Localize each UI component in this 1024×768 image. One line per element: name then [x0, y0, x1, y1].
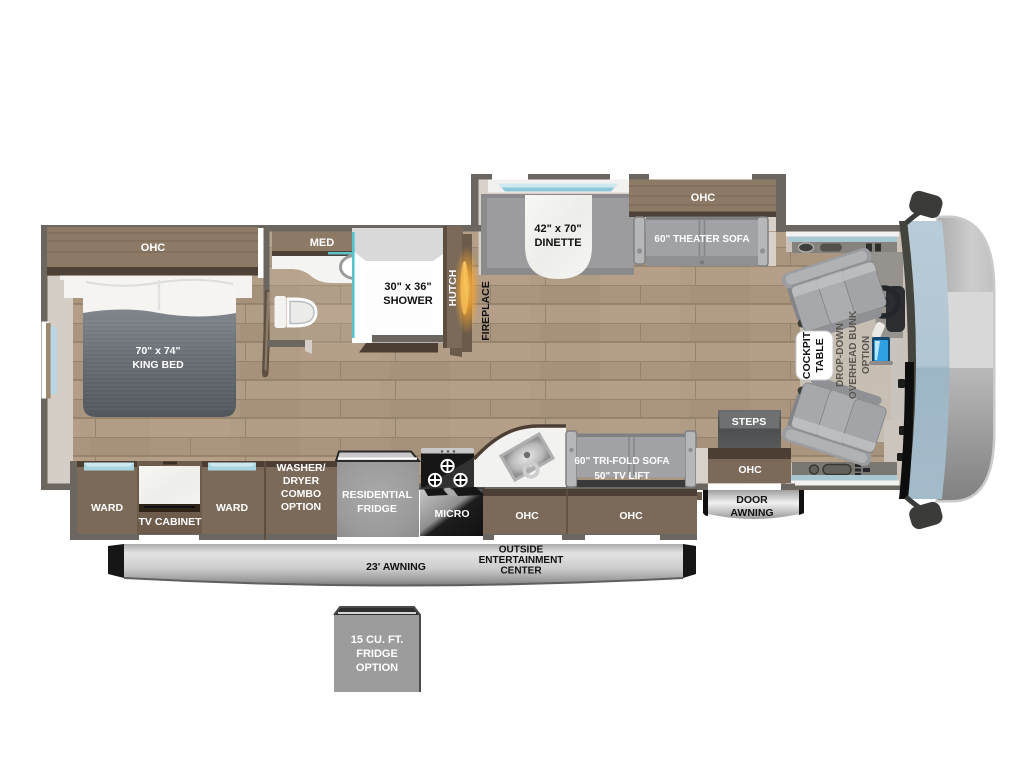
svg-text:15 CU. FT.: 15 CU. FT. [351, 634, 404, 646]
svg-text:WARD: WARD [216, 502, 248, 514]
svg-text:RESIDENTIAL: RESIDENTIAL [342, 489, 413, 501]
svg-text:30" x 36": 30" x 36" [384, 281, 431, 293]
svg-text:CENTER: CENTER [500, 566, 542, 577]
svg-text:FIREPLACE: FIREPLACE [480, 281, 492, 341]
svg-text:DROP-DOWN: DROP-DOWN [835, 323, 846, 387]
svg-text:WARD: WARD [91, 502, 123, 514]
svg-text:50" TV LIFT: 50" TV LIFT [594, 471, 649, 482]
svg-text:FRIDGE: FRIDGE [357, 503, 397, 515]
svg-text:AWNING: AWNING [730, 507, 773, 519]
svg-text:WASHER/: WASHER/ [276, 462, 325, 474]
svg-text:TV CABINET: TV CABINET [139, 516, 203, 528]
svg-text:DOOR: DOOR [736, 494, 768, 506]
svg-text:DINETTE: DINETTE [534, 237, 581, 249]
svg-text:OPTION: OPTION [281, 501, 321, 513]
svg-text:OPTION: OPTION [356, 662, 398, 674]
svg-text:OHC: OHC [691, 192, 716, 204]
svg-text:60" TRI-FOLD SOFA: 60" TRI-FOLD SOFA [574, 456, 669, 467]
svg-text:COMBO: COMBO [281, 488, 321, 500]
svg-text:FRIDGE: FRIDGE [356, 648, 398, 660]
svg-text:OHC: OHC [738, 464, 762, 476]
svg-text:SHOWER: SHOWER [383, 295, 433, 307]
svg-text:MED: MED [310, 237, 335, 249]
svg-text:42" x 70": 42" x 70" [534, 223, 581, 235]
svg-text:OHC: OHC [141, 242, 166, 254]
svg-text:OHC: OHC [515, 510, 539, 522]
svg-text:COCKPIT: COCKPIT [801, 331, 813, 379]
svg-text:TABLE: TABLE [814, 338, 826, 372]
svg-text:OHC: OHC [619, 510, 643, 522]
svg-text:DRYER: DRYER [283, 475, 320, 487]
svg-text:OPTION: OPTION [861, 336, 872, 374]
svg-text:ENTERTAINMENT: ENTERTAINMENT [479, 555, 564, 566]
svg-text:STEPS: STEPS [732, 416, 766, 428]
svg-text:MICRO: MICRO [435, 508, 470, 520]
svg-text:60" THEATER SOFA: 60" THEATER SOFA [654, 234, 749, 245]
svg-text:70" x 74": 70" x 74" [136, 345, 181, 357]
svg-text:OVERHEAD BUNK: OVERHEAD BUNK [848, 310, 859, 399]
svg-text:23' AWNING: 23' AWNING [366, 561, 426, 573]
svg-text:OUTSIDE: OUTSIDE [499, 545, 544, 556]
svg-text:KING BED: KING BED [132, 359, 184, 371]
